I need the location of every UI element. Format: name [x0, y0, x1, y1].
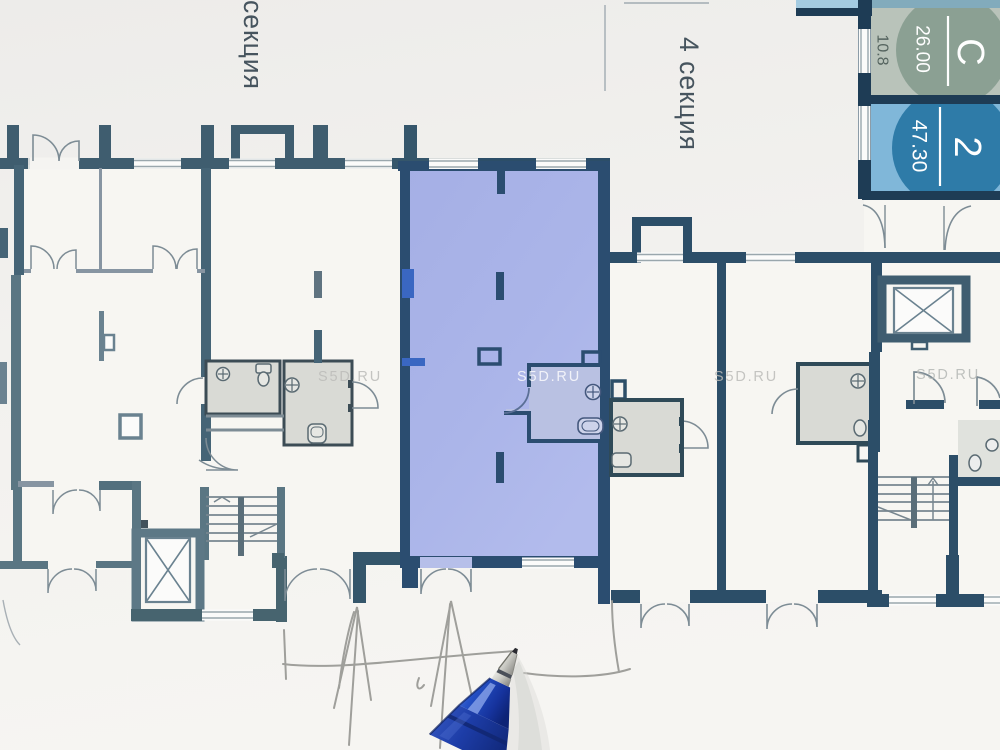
- svg-text:2: 2: [946, 136, 988, 157]
- svg-text:10.8: 10.8: [874, 34, 891, 65]
- svg-text:С: С: [949, 38, 991, 65]
- svg-text:26.00: 26.00: [912, 25, 933, 73]
- svg-text:S5D.RU: S5D.RU: [318, 369, 382, 385]
- svg-text:4 секция: 4 секция: [674, 37, 704, 151]
- svg-text:секция: секция: [238, 0, 268, 90]
- svg-text:S5D.RU: S5D.RU: [714, 369, 778, 385]
- svg-text:47.30: 47.30: [908, 120, 931, 173]
- svg-text:S5D.RU: S5D.RU: [916, 367, 980, 383]
- svg-text:S5D.RU: S5D.RU: [517, 369, 581, 385]
